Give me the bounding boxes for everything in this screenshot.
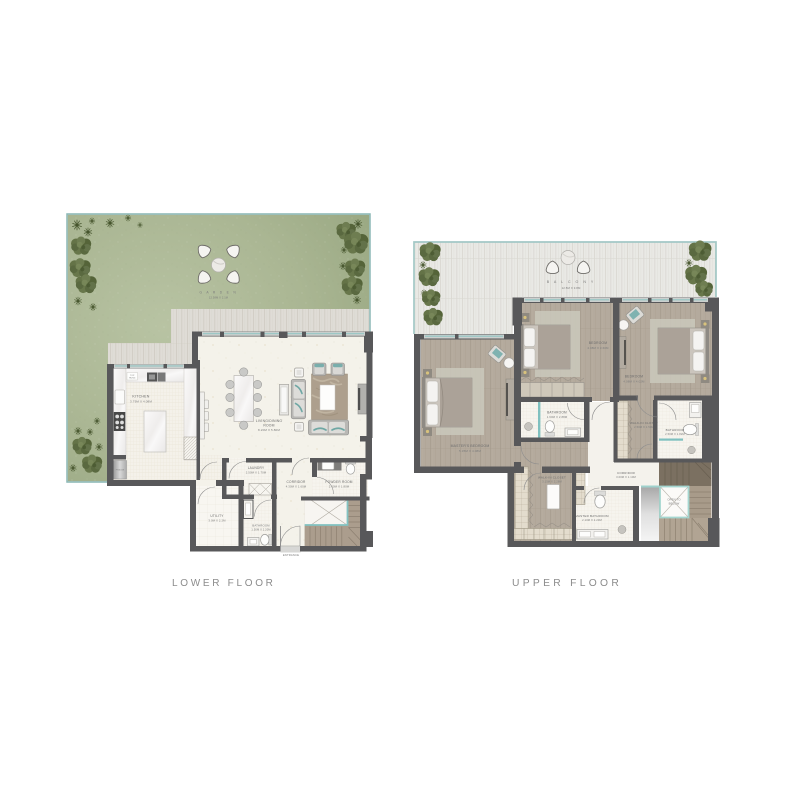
svg-text:BEDROOM: BEDROOM xyxy=(625,375,643,379)
svg-text:ENTRANCE: ENTRANCE xyxy=(283,553,299,557)
svg-text:UPPER FLOOR: UPPER FLOOR xyxy=(512,578,622,589)
svg-text:B A L C O N Y: B A L C O N Y xyxy=(547,280,596,284)
svg-text:1.50M X 2.20M: 1.50M X 2.20M xyxy=(251,528,270,532)
svg-text:MASTER BATHROOM: MASTER BATHROOM xyxy=(575,514,609,518)
svg-text:4.08M X 3.60M: 4.08M X 3.60M xyxy=(587,346,609,350)
svg-text:4.08M X 4.02M: 4.08M X 4.02M xyxy=(623,380,645,384)
svg-text:UTILITY: UTILITY xyxy=(210,514,224,518)
svg-text:3.0M X 2.2M: 3.0M X 2.2M xyxy=(208,519,226,523)
svg-text:WALK-IN CLOSET: WALK-IN CLOSET xyxy=(538,476,566,480)
svg-text:BELOW: BELOW xyxy=(669,502,680,506)
svg-text:2.50M X 1.82M: 2.50M X 1.82M xyxy=(665,432,685,436)
svg-text:KITCHEN: KITCHEN xyxy=(132,395,149,399)
svg-text:2.50M X 1.50M: 2.50M X 1.50M xyxy=(634,425,654,429)
svg-text:LAUNDRY: LAUNDRY xyxy=(248,466,265,470)
svg-text:BATHROOM: BATHROOM xyxy=(252,524,270,528)
svg-text:FRIDGE: FRIDGE xyxy=(116,470,125,472)
svg-text:4.30M X 1.60M: 4.30M X 1.60M xyxy=(286,485,307,489)
svg-text:MASTER'S BEDROOM: MASTER'S BEDROOM xyxy=(451,444,490,448)
svg-text:2.50M X 1.70M: 2.50M X 1.70M xyxy=(246,471,267,475)
svg-text:5.35M X 4.08M: 5.35M X 4.08M xyxy=(459,449,481,453)
svg-text:3.79M X 4.08M: 3.79M X 4.08M xyxy=(130,400,152,404)
svg-text:8.20M X 5.80M: 8.20M X 5.80M xyxy=(258,428,280,432)
svg-text:BATHROOM: BATHROOM xyxy=(666,428,685,432)
svg-text:3.00M X 1.10M: 3.00M X 1.10M xyxy=(616,475,636,479)
svg-text:ROOM: ROOM xyxy=(263,424,274,428)
svg-text:12.5M X 3.8M: 12.5M X 3.8M xyxy=(562,286,581,290)
svg-text:BEDROOM: BEDROOM xyxy=(589,341,607,345)
svg-text:LOWER FLOOR: LOWER FLOOR xyxy=(172,578,276,589)
svg-text:G A R D E N: G A R D E N xyxy=(199,291,237,295)
svg-text:12.58M X 2.1M: 12.58M X 2.1M xyxy=(209,296,228,300)
svg-text:HUNG: HUNG xyxy=(129,377,136,379)
svg-text:CORRIDOR: CORRIDOR xyxy=(617,471,636,475)
svg-text:CORRIDOR: CORRIDOR xyxy=(287,480,306,484)
svg-text:3.15M X 2.28M: 3.15M X 2.28M xyxy=(542,480,562,484)
svg-text:1.60M X 2.88M: 1.60M X 2.88M xyxy=(547,415,568,419)
svg-text:BATHROOM: BATHROOM xyxy=(547,411,567,415)
svg-text:LIVING/DINING: LIVING/DINING xyxy=(256,419,283,423)
svg-text:2.10M X 2.23M: 2.10M X 2.23M xyxy=(582,518,602,522)
